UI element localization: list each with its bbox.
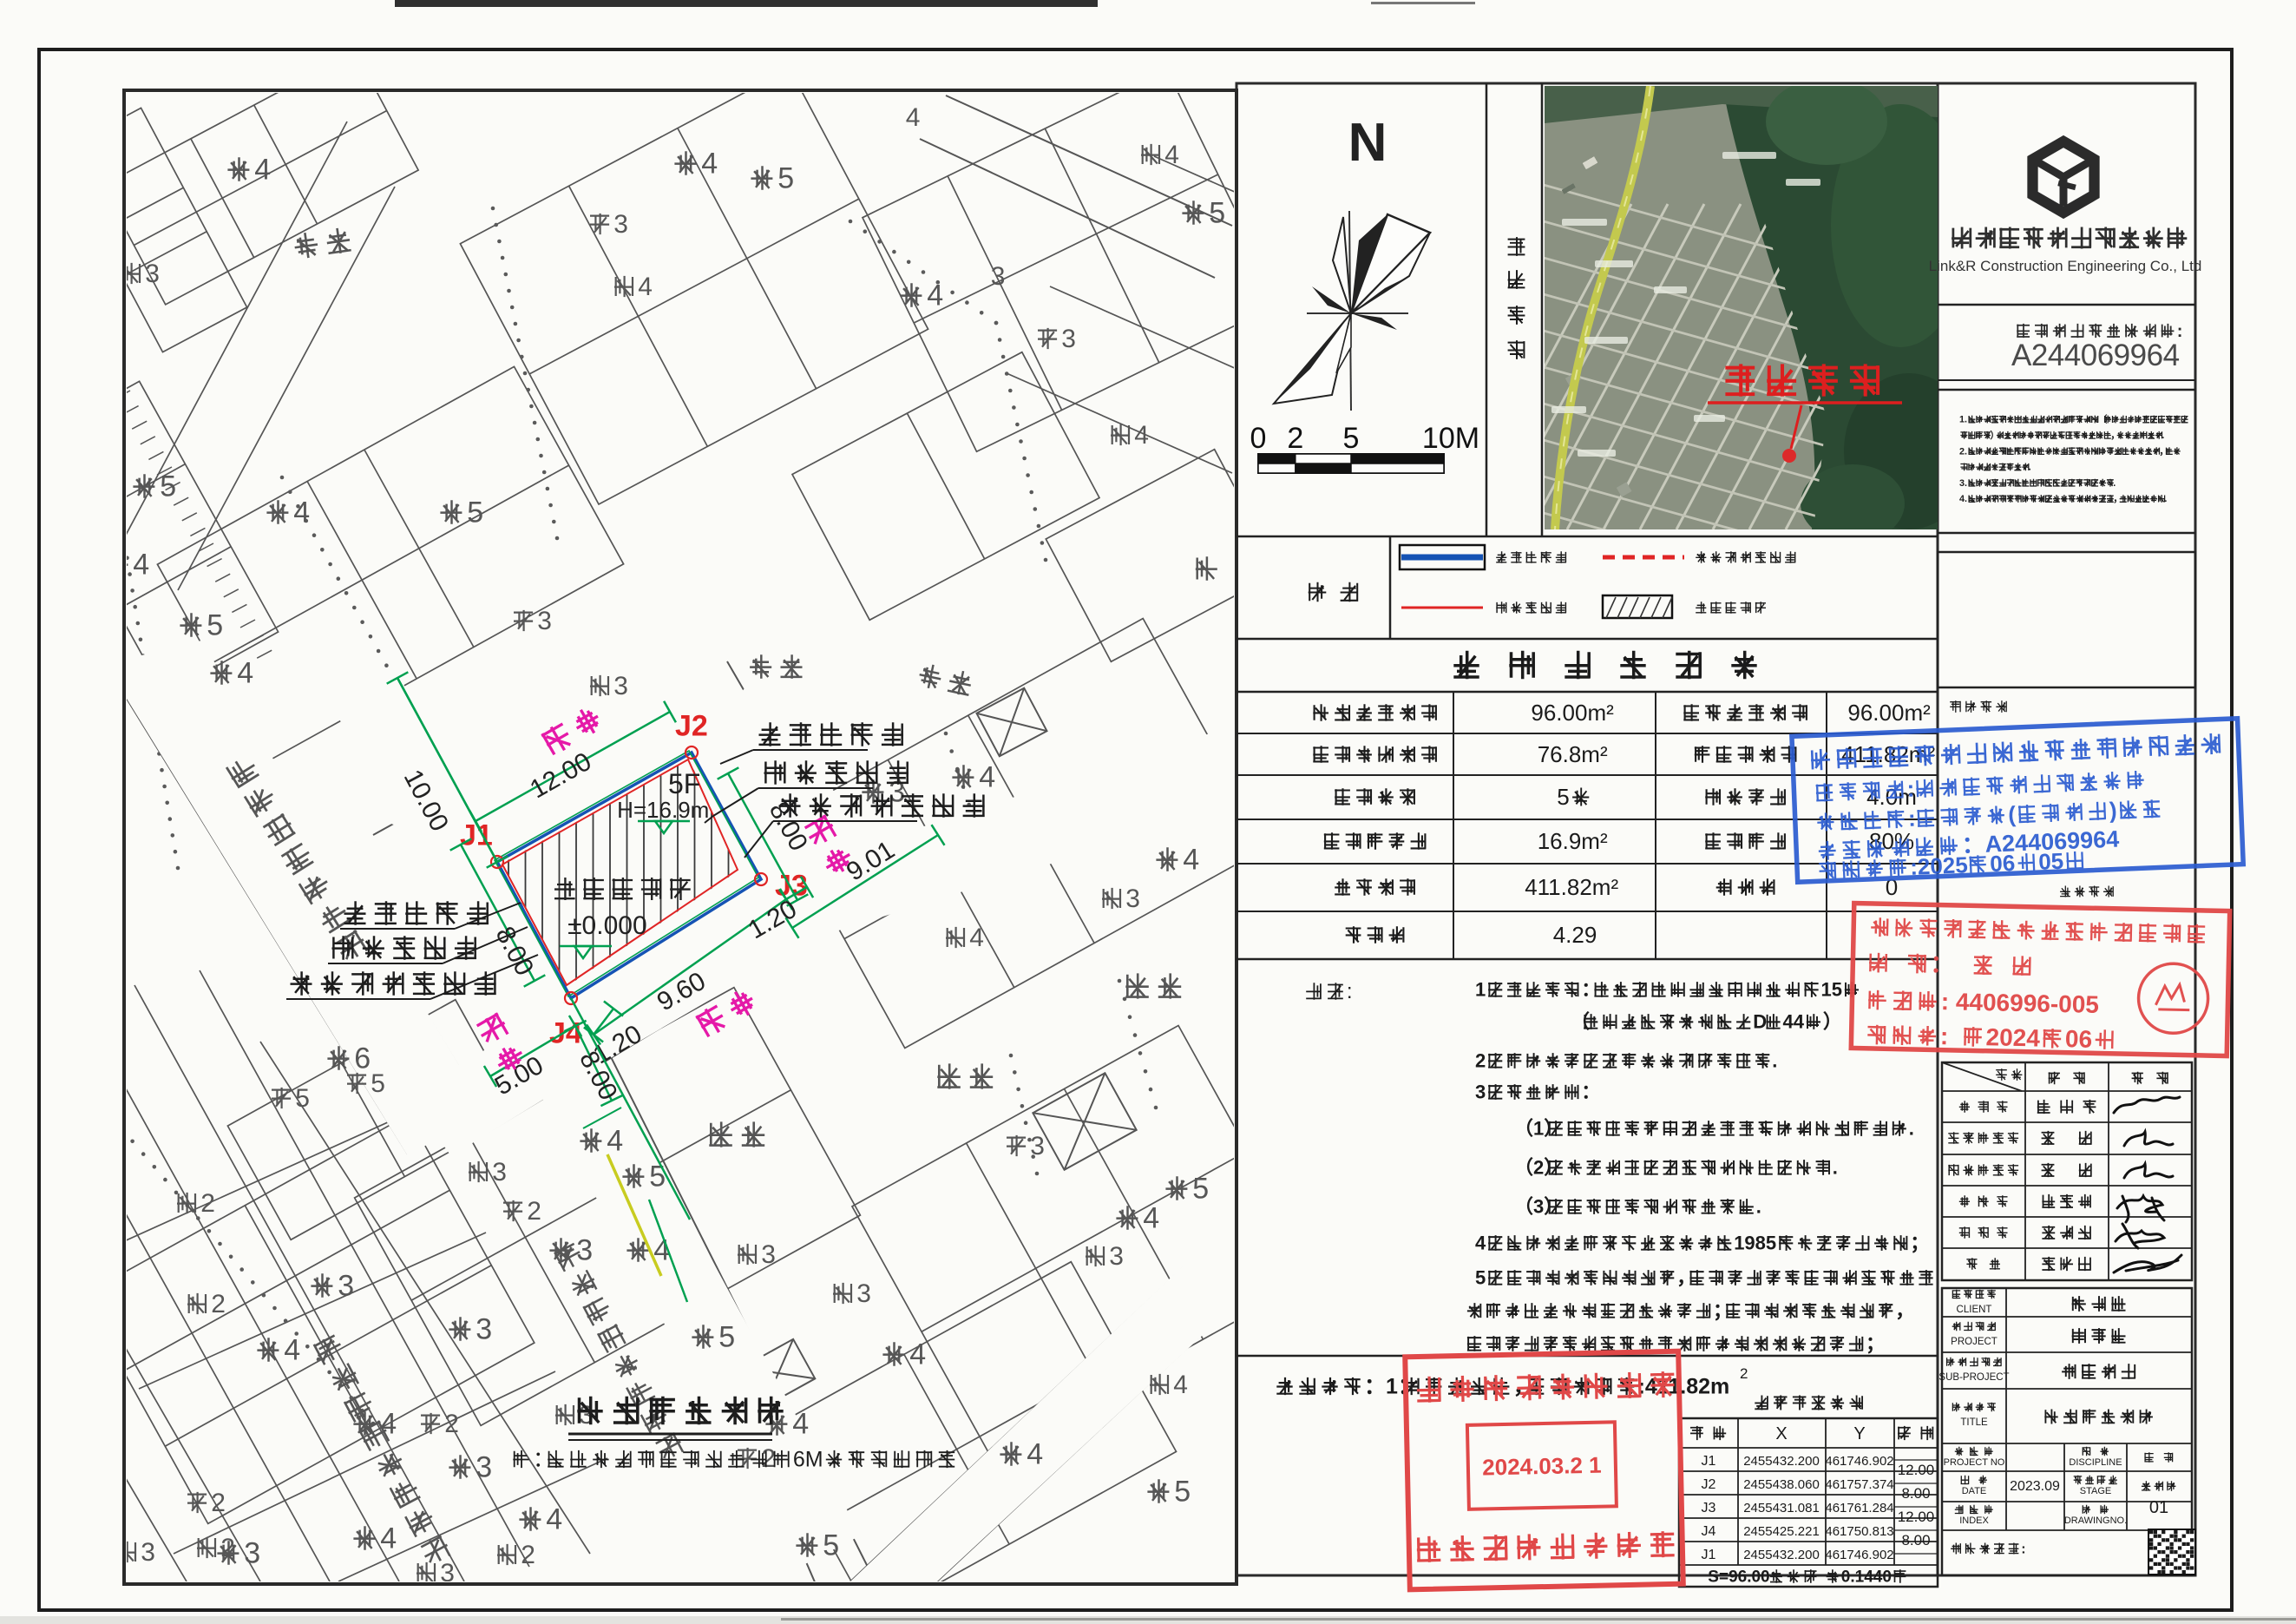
svg-text:N: N xyxy=(1348,113,1387,173)
svg-text:2: 2 xyxy=(444,1410,459,1438)
svg-text:STAGE: STAGE xyxy=(2080,1486,2111,1496)
svg-text:10M: 10M xyxy=(1422,422,1479,455)
svg-text:3: 3 xyxy=(145,260,160,288)
svg-text:5: 5 xyxy=(1343,422,1360,455)
svg-text:461746.902: 461746.902 xyxy=(1825,1454,1893,1469)
svg-text:2455438.060: 2455438.060 xyxy=(1743,1477,1820,1492)
svg-text:8.00: 8.00 xyxy=(1901,1485,1930,1502)
svg-text:3: 3 xyxy=(476,1451,492,1484)
svg-text:4: 4 xyxy=(284,1334,300,1367)
svg-text:2: 2 xyxy=(220,1534,235,1562)
svg-text:06: 06 xyxy=(1990,850,2016,877)
svg-text:2455432.200: 2455432.200 xyxy=(1743,1454,1820,1469)
svg-text:5: 5 xyxy=(718,1321,735,1354)
svg-text:4: 4 xyxy=(133,549,149,582)
svg-text:4: 4 xyxy=(1183,844,1199,877)
svg-text:J2: J2 xyxy=(675,710,708,743)
svg-text::: : xyxy=(1906,776,1915,802)
svg-text:: 4406996-005: : 4406996-005 xyxy=(1941,988,2100,1018)
svg-text:4: 4 xyxy=(546,1503,562,1536)
svg-text::: : xyxy=(1907,805,1916,832)
svg-text:A244069964: A244069964 xyxy=(2011,339,2180,372)
svg-text:3: 3 xyxy=(991,262,1006,291)
svg-text:4: 4 xyxy=(1027,1438,1043,1471)
svg-text:2: 2 xyxy=(200,1189,215,1218)
svg-text:：: ： xyxy=(1581,1082,1600,1103)
svg-text:3.: 3. xyxy=(1959,478,1967,489)
svg-text:3: 3 xyxy=(761,1240,776,1269)
svg-text:3: 3 xyxy=(141,1538,155,1567)
svg-text:.: . xyxy=(1756,1196,1761,1218)
svg-text:5: 5 xyxy=(1192,1173,1209,1206)
svg-text:Link&R Construction Engineerin: Link&R Construction Engineering Co., Ltd xyxy=(1929,258,2202,274)
svg-text:D: D xyxy=(1753,1011,1767,1033)
svg-text:1.: 1. xyxy=(1959,415,1967,425)
svg-text:4: 4 xyxy=(380,1408,397,1441)
svg-text:(: ( xyxy=(2008,801,2017,827)
svg-text:): ) xyxy=(2109,797,2117,823)
svg-text:05: 05 xyxy=(2038,848,2064,875)
svg-text:5F: 5F xyxy=(668,768,700,799)
svg-text:±0.000: ±0.000 xyxy=(567,911,647,940)
svg-text:5: 5 xyxy=(823,1529,839,1562)
svg-text:；: ； xyxy=(1910,1233,1929,1254)
svg-text:PROJECT NO: PROJECT NO xyxy=(1944,1457,2005,1468)
svg-text:TITLE: TITLE xyxy=(1960,1417,1988,1428)
svg-text:4: 4 xyxy=(1143,1202,1159,1235)
svg-text:461750.813: 461750.813 xyxy=(1825,1524,1893,1539)
svg-text:，: ， xyxy=(1895,1300,1914,1322)
svg-text:X: X xyxy=(1775,1424,1787,1443)
svg-text:4: 4 xyxy=(1164,141,1179,169)
svg-text:96.00m²: 96.00m² xyxy=(1531,700,1614,726)
svg-text:PROJECT: PROJECT xyxy=(1951,1337,1998,1347)
svg-text:2024.03.2 1: 2024.03.2 1 xyxy=(1482,1452,1602,1481)
svg-text:8.00: 8.00 xyxy=(1901,1532,1930,1548)
svg-text:4: 4 xyxy=(1475,1233,1486,1254)
svg-text:4: 4 xyxy=(380,1522,397,1555)
svg-text:H=16.9m: H=16.9m xyxy=(617,797,709,823)
svg-text:2024: 2024 xyxy=(1985,1023,2040,1051)
svg-text:INDEX: INDEX xyxy=(1959,1516,1989,1526)
svg-text:0.1440: 0.1440 xyxy=(1841,1568,1892,1587)
svg-text:411.82m²: 411.82m² xyxy=(1525,874,1618,900)
svg-text:3: 3 xyxy=(1125,884,1140,913)
svg-text:J3: J3 xyxy=(1702,1501,1716,1516)
svg-text:6: 6 xyxy=(354,1042,371,1075)
svg-text:4: 4 xyxy=(979,761,995,794)
svg-text:461761.284: 461761.284 xyxy=(1825,1501,1893,1516)
svg-text:2: 2 xyxy=(1475,1050,1486,1072)
svg-text:.: . xyxy=(2029,463,2031,473)
svg-text:DISCIPLINE: DISCIPLINE xyxy=(2069,1457,2122,1468)
svg-text:3: 3 xyxy=(492,1158,507,1187)
svg-text:J1: J1 xyxy=(1702,1454,1716,1469)
svg-text:；: ； xyxy=(1866,1333,1885,1355)
svg-text:1985: 1985 xyxy=(1734,1233,1776,1254)
svg-text:.: . xyxy=(2113,478,2116,489)
svg-text:5: 5 xyxy=(295,1084,310,1113)
svg-text:J2: J2 xyxy=(1702,1477,1716,1492)
svg-text:4: 4 xyxy=(969,924,984,952)
svg-text:2: 2 xyxy=(211,1290,226,1318)
svg-text:J4: J4 xyxy=(549,1017,582,1050)
svg-text:.: . xyxy=(1909,1118,1914,1140)
svg-text:461746.902: 461746.902 xyxy=(1825,1548,1893,1562)
svg-text:J1: J1 xyxy=(1702,1548,1716,1562)
svg-text:44: 44 xyxy=(1783,1011,1805,1033)
svg-text:3: 3 xyxy=(1061,325,1076,353)
svg-text:5: 5 xyxy=(1174,1476,1191,1509)
svg-text:4: 4 xyxy=(1173,1371,1188,1399)
svg-text:4: 4 xyxy=(909,1338,926,1371)
svg-text:S=96.00: S=96.00 xyxy=(1708,1568,1769,1587)
svg-text:.: . xyxy=(1833,1157,1838,1179)
svg-text:CLIENT: CLIENT xyxy=(1957,1305,1992,1315)
svg-text:3: 3 xyxy=(613,210,628,239)
svg-text:4: 4 xyxy=(237,657,253,690)
svg-text:5: 5 xyxy=(1209,197,1225,230)
svg-text:5: 5 xyxy=(1475,1267,1486,1289)
svg-text:2: 2 xyxy=(1740,1365,1748,1382)
svg-text:SUB-PROJECT: SUB-PROJECT xyxy=(1938,1372,2009,1383)
svg-text:5: 5 xyxy=(371,1069,385,1098)
svg-text:06: 06 xyxy=(2065,1025,2093,1053)
svg-text::: : xyxy=(1940,1022,1963,1050)
svg-text:.: . xyxy=(2162,431,2164,441)
svg-text:16.9m²: 16.9m² xyxy=(1538,828,1608,854)
svg-text:3: 3 xyxy=(244,1537,260,1570)
svg-text:5: 5 xyxy=(207,609,223,642)
svg-text:2455432.200: 2455432.200 xyxy=(1743,1548,1820,1562)
svg-text:5: 5 xyxy=(777,162,794,195)
svg-text:3: 3 xyxy=(1475,1082,1486,1103)
svg-text:3: 3 xyxy=(576,1234,593,1267)
svg-text:12.00: 12.00 xyxy=(1898,1462,1935,1478)
svg-text:3: 3 xyxy=(856,1279,871,1308)
svg-text:3: 3 xyxy=(1030,1132,1045,1160)
svg-text:.: . xyxy=(2164,494,2167,504)
svg-text:2: 2 xyxy=(527,1197,541,1226)
svg-text:3: 3 xyxy=(537,607,552,635)
svg-text:2: 2 xyxy=(211,1489,226,1517)
svg-text:4: 4 xyxy=(1134,421,1149,450)
svg-text:0: 0 xyxy=(1250,422,1267,455)
svg-text:3: 3 xyxy=(1109,1242,1124,1271)
svg-text:2455425.221: 2455425.221 xyxy=(1743,1524,1820,1539)
svg-text:96.00m²: 96.00m² xyxy=(1847,700,1931,726)
svg-text:1: 1 xyxy=(1475,979,1486,1001)
svg-text:2.: 2. xyxy=(1959,446,1967,457)
svg-text:5: 5 xyxy=(467,496,483,529)
svg-text:4: 4 xyxy=(607,1125,623,1158)
svg-text:6M: 6M xyxy=(793,1448,823,1472)
svg-text:5: 5 xyxy=(649,1160,666,1193)
svg-text:4: 4 xyxy=(254,154,271,187)
svg-text:15: 15 xyxy=(1821,979,1842,1001)
svg-text:4.29: 4.29 xyxy=(1553,922,1597,948)
svg-text:Y: Y xyxy=(1853,1424,1865,1443)
svg-text:4: 4 xyxy=(638,273,653,301)
svg-text:2023.09: 2023.09 xyxy=(2010,1479,2060,1494)
svg-text:DRAWINGNO.: DRAWINGNO. xyxy=(2064,1516,2127,1526)
svg-text:4: 4 xyxy=(906,103,921,132)
svg-text:4: 4 xyxy=(927,279,943,312)
svg-text::: : xyxy=(2021,1542,2025,1556)
svg-text:.: . xyxy=(1772,1050,1777,1072)
svg-text:2: 2 xyxy=(521,1541,535,1569)
svg-text:3: 3 xyxy=(476,1313,492,1346)
svg-text:01: 01 xyxy=(2149,1498,2168,1517)
svg-text:2: 2 xyxy=(1287,422,1303,455)
svg-text:4.: 4. xyxy=(1959,494,1967,504)
svg-text:76.8m²: 76.8m² xyxy=(1538,741,1608,767)
svg-text::2025: :2025 xyxy=(1910,851,1969,880)
svg-text:J4: J4 xyxy=(1702,1524,1716,1539)
svg-text:12.00: 12.00 xyxy=(1898,1509,1935,1525)
svg-text:4: 4 xyxy=(701,148,718,181)
svg-text:3: 3 xyxy=(613,672,628,700)
svg-text::: : xyxy=(1347,980,1353,1003)
svg-text:3: 3 xyxy=(338,1270,354,1303)
svg-text:4: 4 xyxy=(293,496,310,529)
svg-text:2455431.081: 2455431.081 xyxy=(1743,1501,1820,1516)
svg-text:4: 4 xyxy=(792,1408,809,1441)
svg-text:）: ） xyxy=(1823,1011,1842,1033)
svg-text:DATE: DATE xyxy=(1962,1486,1987,1496)
svg-text:5: 5 xyxy=(160,470,176,503)
svg-text:5: 5 xyxy=(1557,784,1569,810)
svg-text:461757.374: 461757.374 xyxy=(1825,1477,1893,1492)
